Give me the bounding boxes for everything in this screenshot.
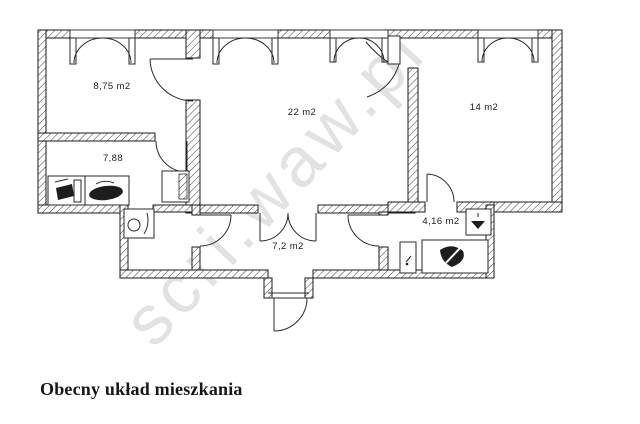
wall-kitchen-top-left	[388, 202, 425, 212]
wall-bathroom-top	[38, 133, 155, 141]
plan-caption: Obecny układ mieszkania	[40, 379, 243, 400]
bathtub-icon	[85, 176, 129, 205]
floor-plan-drawing: scri.waw.pl	[0, 0, 640, 424]
window-icon-room-right	[478, 30, 538, 62]
door-top-left-room-to-bathroom	[156, 141, 187, 172]
wall-bottom-left	[120, 270, 268, 278]
wall-hall-left-top	[192, 205, 200, 215]
wall-living-left-top	[186, 30, 200, 58]
sink-icon	[466, 209, 491, 235]
wall-hall-right-top	[379, 212, 388, 215]
window-icon-living-left	[213, 30, 278, 64]
wall-top-4	[388, 30, 478, 38]
wall-top-2	[135, 30, 213, 38]
door-living-to-top-left-room	[150, 59, 193, 101]
wall-living-right	[408, 68, 418, 205]
wall-vestibule-left	[264, 278, 272, 298]
wall-bathroom-bottom	[38, 205, 122, 213]
wall-vestibule-right	[305, 278, 313, 298]
wall-alcove-top	[153, 205, 192, 212]
door-hallway-to-kitchen	[348, 215, 379, 246]
room-label-right: 14 m2	[470, 102, 498, 113]
room-label-bathroom: 7,88	[103, 153, 123, 164]
door-room-right-to-kitchen	[427, 174, 454, 202]
water-heater-icon	[162, 171, 189, 202]
window-icon-room-top-left	[70, 30, 135, 64]
toilet-icon	[48, 176, 85, 205]
room-label-top-left: 8,75 m2	[93, 81, 130, 92]
room-label-kitchen: 4,16 m2	[422, 216, 459, 227]
entrance-door	[268, 293, 309, 331]
wall-top-3	[278, 30, 330, 38]
wall-left-outer	[38, 30, 46, 213]
stove-icon	[422, 240, 488, 273]
floor-plan-page: scri.waw.pl	[0, 0, 640, 424]
room-label-hallway: 7,2 m2	[272, 241, 303, 252]
room-label-living: 22 m2	[288, 107, 316, 118]
wall-hall-top-left	[200, 205, 258, 213]
wall-bottom-right-outer	[494, 202, 562, 212]
washbasin-icon	[124, 209, 154, 238]
fridge-icon	[400, 242, 416, 273]
wall-right-outer	[552, 30, 562, 205]
